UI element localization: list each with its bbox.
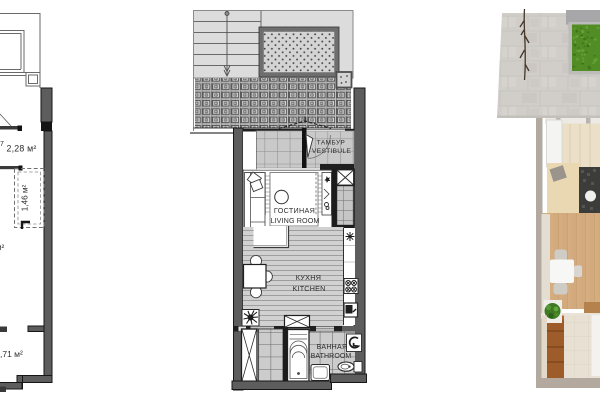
svg-text:м²: м² (0, 243, 5, 252)
svg-text:7: 7 (0, 141, 4, 148)
svg-text:ГОСТИНАЯ: ГОСТИНАЯ (274, 206, 315, 215)
svg-text:,71 м²: ,71 м² (0, 349, 23, 359)
svg-text:КУХНЯ: КУХНЯ (296, 273, 322, 282)
svg-text:ВАННАЯ: ВАННАЯ (317, 344, 348, 351)
svg-text:BATHROOM: BATHROOM (311, 353, 352, 360)
svg-text:LIVING ROOM: LIVING ROOM (270, 216, 319, 225)
svg-text:1,46 м²: 1,46 м² (21, 184, 30, 211)
svg-text:2,28 м²: 2,28 м² (7, 144, 37, 154)
svg-text:VESTIBULE: VESTIBULE (312, 148, 351, 155)
svg-text:ТАМБУР: ТАМБУР (317, 139, 346, 146)
svg-text:KITCHEN: KITCHEN (293, 284, 326, 293)
